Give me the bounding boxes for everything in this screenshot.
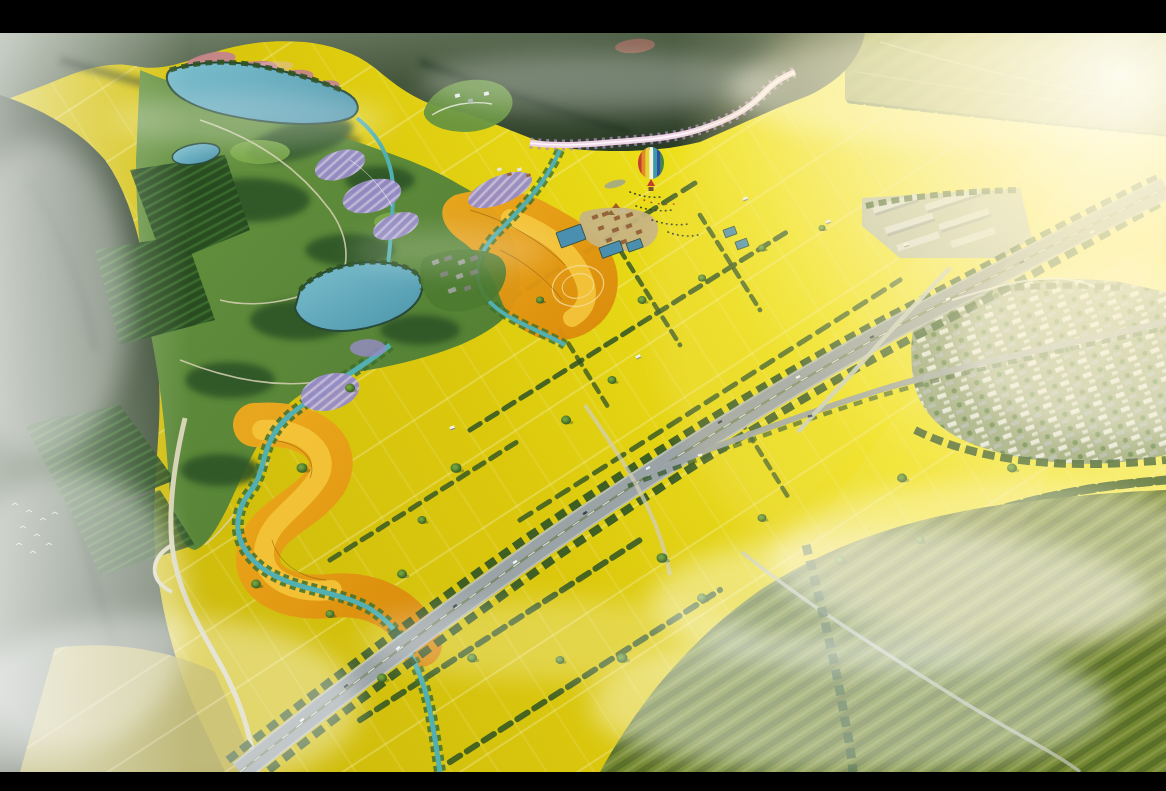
- sun-glow: [0, 33, 1166, 772]
- letterbox-top-bar: [0, 0, 1166, 33]
- atmosphere: [0, 0, 1166, 791]
- letterbox-bottom-bar: [0, 772, 1166, 791]
- scene: [0, 0, 1166, 791]
- rendering-stage: [0, 0, 1166, 791]
- aerial-masterplan-rendering: [0, 0, 1166, 791]
